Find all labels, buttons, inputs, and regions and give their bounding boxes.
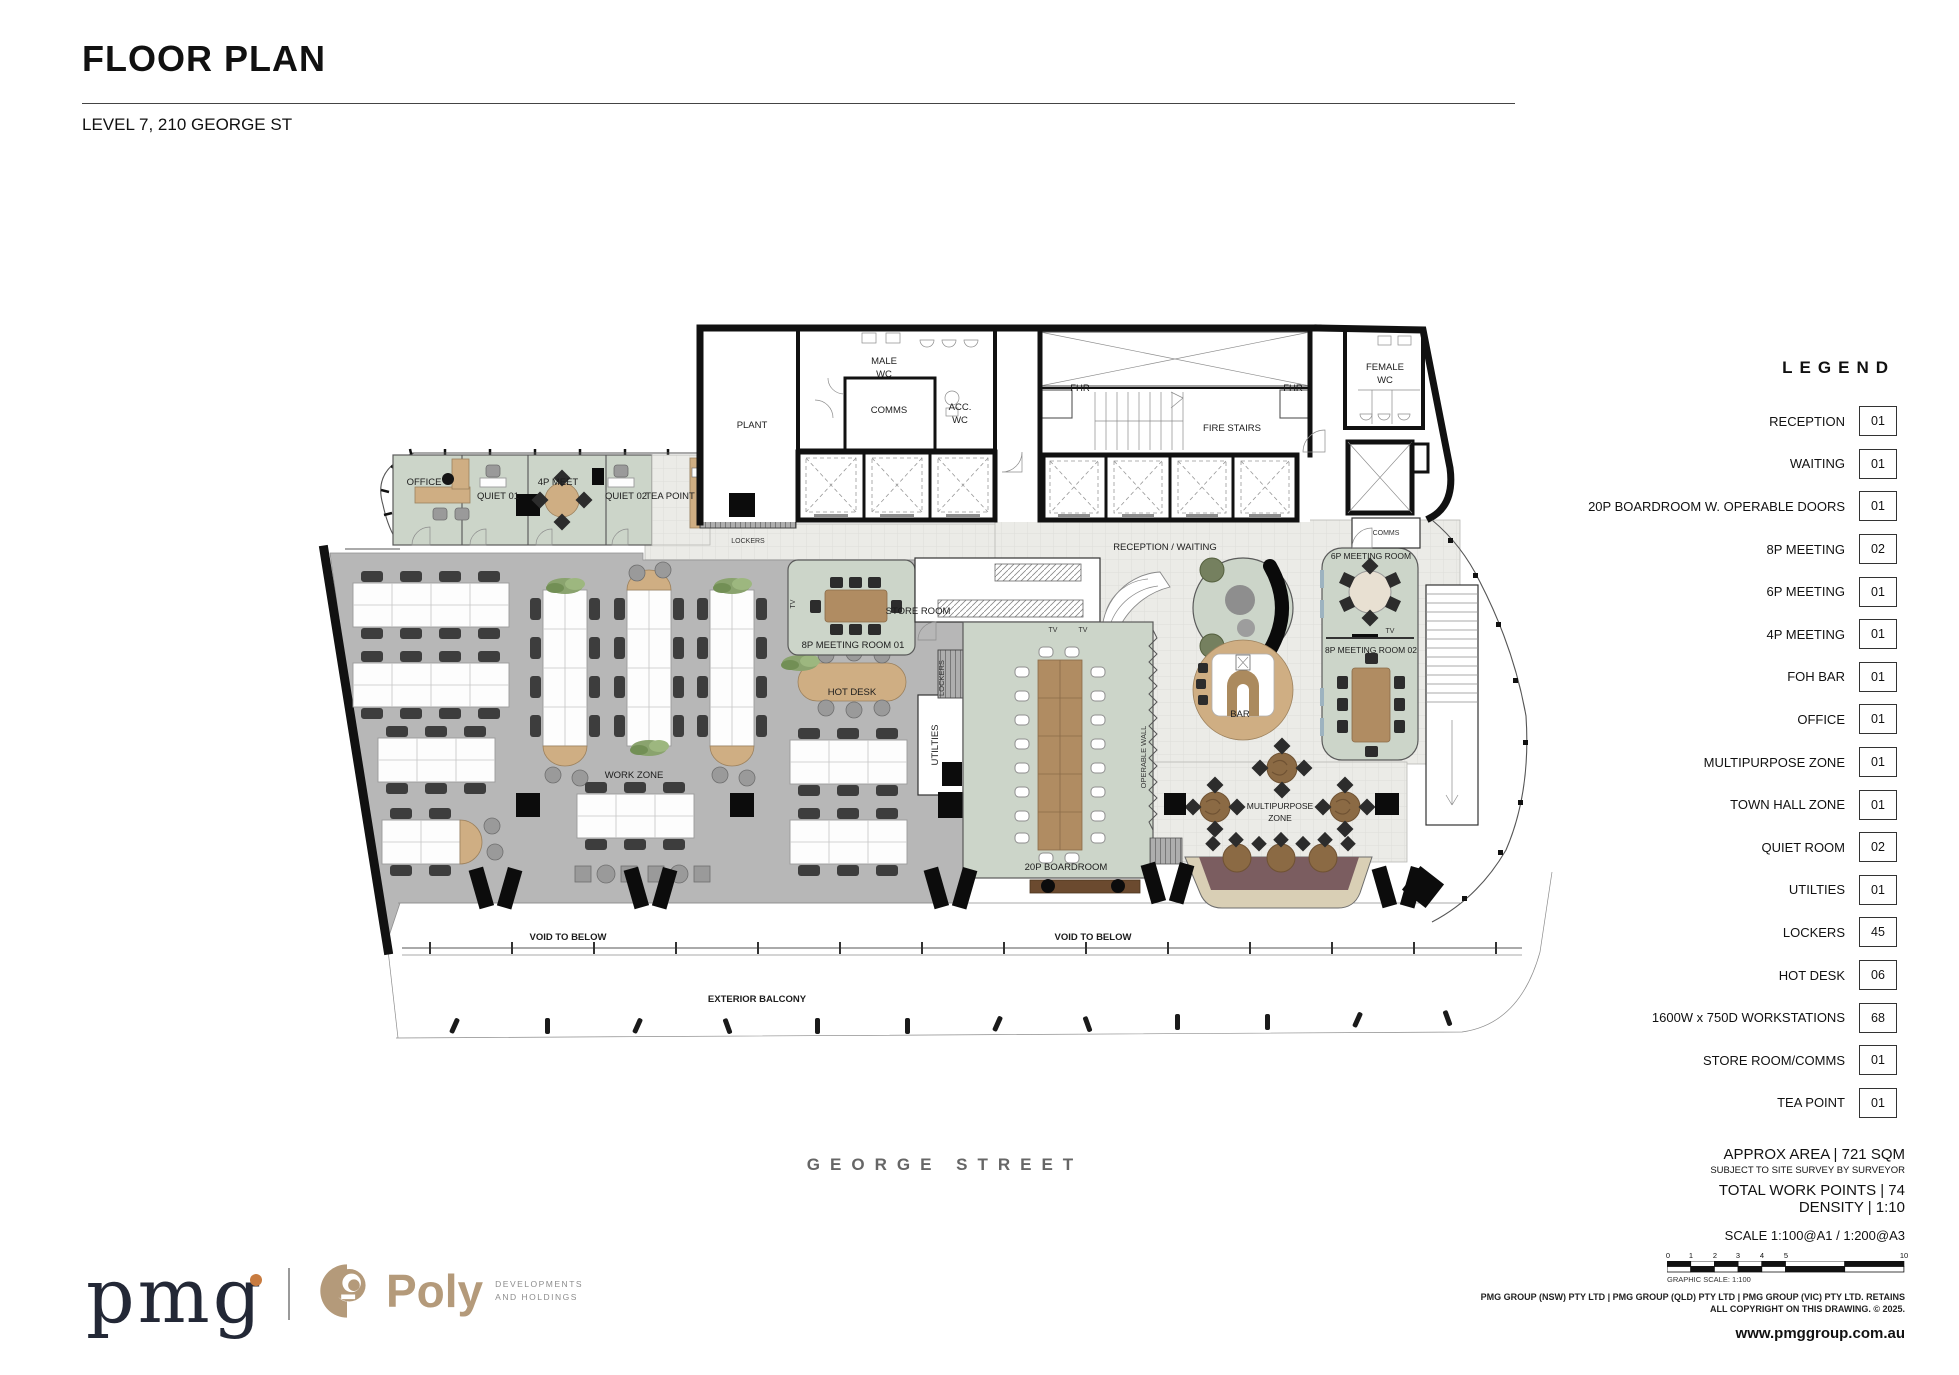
scale-bar-graphic <box>1667 1261 1905 1273</box>
legend-row: 8P MEETING 02 <box>1477 528 1897 571</box>
legend-item-label: FOH BAR <box>1787 669 1845 684</box>
legend-row: FOH BAR 01 <box>1477 656 1897 699</box>
svg-text:WC: WC <box>952 415 968 426</box>
copyright-line1: PMG GROUP (NSW) PTY LTD | PMG GROUP (QLD… <box>1445 1291 1905 1303</box>
svg-text:QUIET 02: QUIET 02 <box>605 491 647 502</box>
core-block <box>700 328 1451 522</box>
svg-text:RECEPTION / WAITING: RECEPTION / WAITING <box>1113 542 1217 553</box>
legend-row: QUIET ROOM 02 <box>1477 826 1897 869</box>
scale-note: SCALE 1:100@A1 / 1:200@A3 <box>1445 1228 1905 1243</box>
legend-item-label: RECEPTION <box>1769 414 1845 429</box>
density: DENSITY | 1:10 <box>1445 1199 1905 1216</box>
legend-row: 4P MEETING 01 <box>1477 613 1897 656</box>
svg-text:FHR: FHR <box>1070 383 1090 394</box>
legend-item-count: 45 <box>1859 917 1897 947</box>
street-label: GEORGE STREET <box>0 1155 1890 1175</box>
legend-item-count: 01 <box>1859 619 1897 649</box>
scale-tick: 10 <box>1900 1251 1908 1260</box>
svg-text:TV: TV <box>790 599 797 608</box>
poly-sub-line1: DEVELOPMENTS <box>495 1279 583 1289</box>
copyright-line2: ALL COPYRIGHT ON THIS DRAWING. © 2025. <box>1445 1303 1905 1315</box>
svg-text:VOID TO BELOW: VOID TO BELOW <box>530 932 607 943</box>
copyright: PMG GROUP (NSW) PTY LTD | PMG GROUP (QLD… <box>1445 1291 1905 1315</box>
poly-logo-icon <box>318 1262 376 1320</box>
svg-text:FIRE STAIRS: FIRE STAIRS <box>1203 423 1261 434</box>
legend-item-label: TOWN HALL ZONE <box>1730 797 1845 812</box>
svg-text:MALE: MALE <box>871 356 897 367</box>
legend-heading: LEGEND <box>1477 358 1897 378</box>
scale-tick: 1 <box>1689 1251 1693 1260</box>
graphic-scale-bar: 0 1 2 3 4 5 10 GRAPHIC SCALE: 1:100 <box>1667 1251 1905 1285</box>
svg-text:8P MEETING ROOM 02: 8P MEETING ROOM 02 <box>1325 645 1417 655</box>
legend-item-label: LOCKERS <box>1783 925 1845 940</box>
scale-tick: 4 <box>1760 1251 1764 1260</box>
legend-row: LOCKERS 45 <box>1477 911 1897 954</box>
svg-text:MULTIPURPOSE: MULTIPURPOSE <box>1247 801 1314 811</box>
legend-row: 20P BOARDROOM W. OPERABLE DOORS 01 <box>1477 485 1897 528</box>
legend-item-label: OFFICE <box>1797 712 1845 727</box>
svg-text:LOCKERS: LOCKERS <box>731 538 765 545</box>
svg-text:ACC.: ACC. <box>949 402 972 413</box>
legend-row: 6P MEETING 01 <box>1477 570 1897 613</box>
svg-text:COMMS: COMMS <box>871 405 907 416</box>
legend-item-label: MULTIPURPOSE ZONE <box>1704 755 1845 770</box>
work-points: TOTAL WORK POINTS | 74 <box>1445 1182 1905 1199</box>
poly-logo-subtext: DEVELOPMENTS AND HOLDINGS <box>495 1278 583 1304</box>
svg-text:STORE ROOM: STORE ROOM <box>886 606 951 617</box>
svg-text:TV: TV <box>1386 628 1395 635</box>
svg-text:UTILTIES: UTILTIES <box>930 725 941 766</box>
logo-divider <box>288 1268 290 1320</box>
svg-text:6P MEETING ROOM: 6P MEETING ROOM <box>1331 551 1411 561</box>
legend-item-count: 01 <box>1859 406 1897 436</box>
legend-row: 1600W x 750D WORKSTATIONS 68 <box>1477 996 1897 1039</box>
poly-logo-text: Poly <box>386 1268 483 1314</box>
pmg-logo: pmg <box>86 1258 264 1334</box>
svg-text:OPERABLE WALL: OPERABLE WALL <box>1139 726 1148 789</box>
svg-text:TV: TV <box>1079 627 1088 634</box>
poly-sub-line2: AND HOLDINGS <box>495 1292 578 1302</box>
legend-item-count: 02 <box>1859 534 1897 564</box>
svg-text:FHR: FHR <box>1283 383 1303 394</box>
legend-item-count: 01 <box>1859 1045 1897 1075</box>
svg-text:TEA POINT: TEA POINT <box>645 491 695 502</box>
legend-item-label: HOT DESK <box>1779 968 1845 983</box>
info-block: APPROX AREA | 721 SQM SUBJECT TO SITE SU… <box>1445 1146 1905 1342</box>
scale-tick: 2 <box>1713 1251 1717 1260</box>
svg-text:PLANT: PLANT <box>737 420 768 431</box>
legend-row: TOWN HALL ZONE 01 <box>1477 783 1897 826</box>
legend-row: RECEPTION 01 <box>1477 400 1897 443</box>
svg-text:4P MEET: 4P MEET <box>538 477 579 488</box>
svg-text:WC: WC <box>1377 375 1393 386</box>
svg-text:8P MEETING ROOM 01: 8P MEETING ROOM 01 <box>802 640 905 651</box>
legend-row: MULTIPURPOSE ZONE 01 <box>1477 741 1897 784</box>
svg-text:QUIET 01: QUIET 01 <box>477 491 519 502</box>
scale-tick: 5 <box>1784 1251 1788 1260</box>
legend-item-label: QUIET ROOM <box>1761 840 1845 855</box>
legend-item-count: 01 <box>1859 1088 1897 1118</box>
legend-item-label: 4P MEETING <box>1766 627 1845 642</box>
svg-text:OFFICE: OFFICE <box>407 477 442 488</box>
legend-item-count: 01 <box>1859 875 1897 905</box>
legend-row: WAITING 01 <box>1477 443 1897 486</box>
svg-text:WC: WC <box>876 369 892 380</box>
svg-text:TV: TV <box>1049 627 1058 634</box>
legend-item-count: 01 <box>1859 704 1897 734</box>
scale-tick: 3 <box>1736 1251 1740 1260</box>
svg-text:EXTERIOR BALCONY: EXTERIOR BALCONY <box>708 994 807 1005</box>
svg-text:ZONE: ZONE <box>1268 813 1292 823</box>
website-link[interactable]: www.pmggroup.com.au <box>1445 1325 1905 1342</box>
legend-row: TEA POINT 01 <box>1477 1082 1897 1125</box>
legend-item-label: WAITING <box>1790 456 1845 471</box>
svg-text:COMMS: COMMS <box>1373 530 1400 537</box>
svg-text:WORK ZONE: WORK ZONE <box>605 770 664 781</box>
legend-row: HOT DESK 06 <box>1477 954 1897 997</box>
legend-item-count: 02 <box>1859 832 1897 862</box>
legend-item-count: 06 <box>1859 960 1897 990</box>
legend: LEGEND RECEPTION 01 WAITING 01 20P BOARD… <box>1477 358 1897 1124</box>
legend-item-count: 01 <box>1859 449 1897 479</box>
legend-row: STORE ROOM/COMMS 01 <box>1477 1039 1897 1082</box>
svg-text:20P BOARDROOM: 20P BOARDROOM <box>1025 862 1108 873</box>
graphic-scale-caption: GRAPHIC SCALE: 1:100 <box>1667 1275 1751 1284</box>
legend-item-label: STORE ROOM/COMMS <box>1703 1053 1845 1068</box>
legend-item-count: 01 <box>1859 577 1897 607</box>
svg-text:FEMALE: FEMALE <box>1366 362 1404 373</box>
legend-item-count: 01 <box>1859 662 1897 692</box>
boardroom <box>963 622 1157 893</box>
legend-item-label: 20P BOARDROOM W. OPERABLE DOORS <box>1588 499 1845 514</box>
legend-rows: RECEPTION 01 WAITING 01 20P BOARDROOM W.… <box>1477 400 1897 1124</box>
legend-item-label: 1600W x 750D WORKSTATIONS <box>1652 1010 1845 1025</box>
legend-item-label: UTILTIES <box>1789 882 1845 897</box>
scale-tick: 0 <box>1666 1251 1670 1260</box>
legend-row: OFFICE 01 <box>1477 698 1897 741</box>
legend-item-count: 68 <box>1859 1003 1897 1033</box>
svg-text:HOT DESK: HOT DESK <box>828 687 877 698</box>
legend-row: UTILTIES 01 <box>1477 869 1897 912</box>
legend-item-label: 8P MEETING <box>1766 542 1845 557</box>
svg-text:LOCKERS: LOCKERS <box>937 660 946 696</box>
legend-item-label: TEA POINT <box>1777 1095 1845 1110</box>
legend-item-count: 01 <box>1859 491 1897 521</box>
legend-item-label: 6P MEETING <box>1766 584 1845 599</box>
legend-item-count: 01 <box>1859 790 1897 820</box>
pmg-logo-dot-icon <box>250 1274 262 1286</box>
svg-text:BAR: BAR <box>1230 709 1250 720</box>
svg-text:VOID TO BELOW: VOID TO BELOW <box>1055 932 1132 943</box>
poly-logo: Poly DEVELOPMENTS AND HOLDINGS <box>318 1262 583 1320</box>
legend-item-count: 01 <box>1859 747 1897 777</box>
